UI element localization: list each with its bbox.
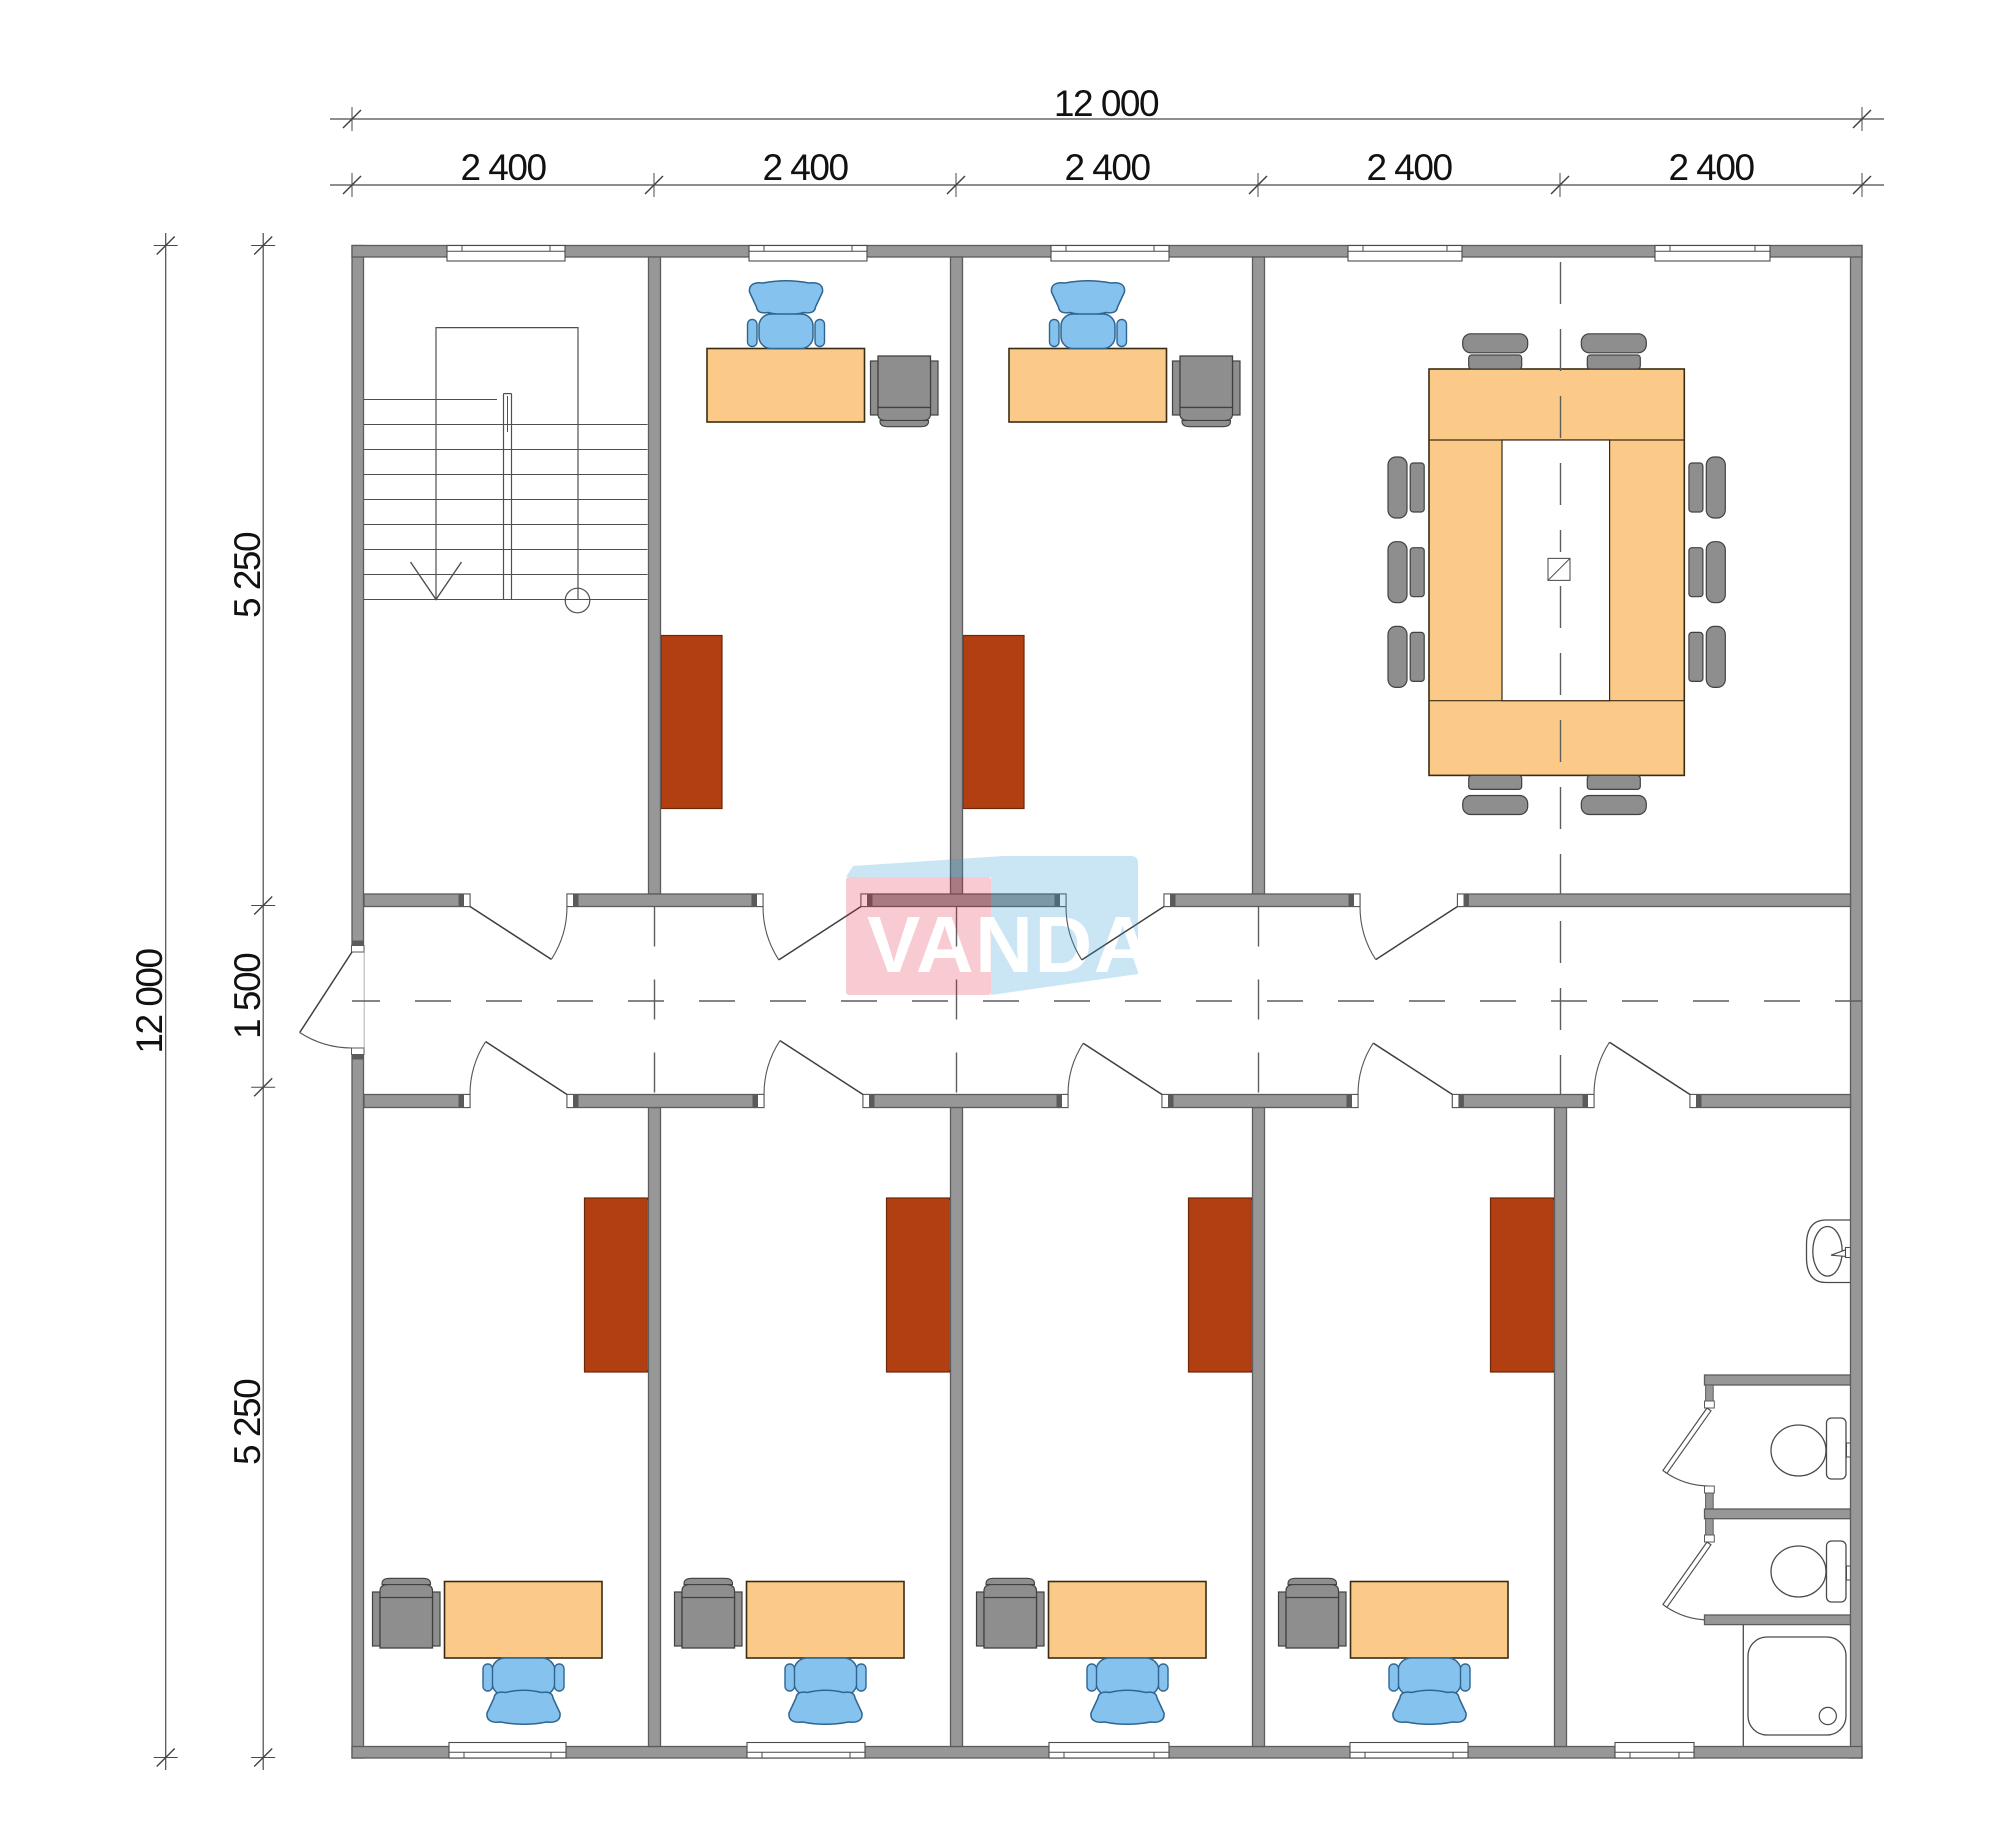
svg-text:5 250: 5 250 [227,1379,268,1465]
svg-text:1 500: 1 500 [227,953,268,1039]
svg-text:12 000: 12 000 [129,948,170,1053]
svg-text:2 400: 2 400 [460,147,546,188]
svg-text:5 250: 5 250 [227,532,268,618]
svg-text:2 400: 2 400 [1366,147,1452,188]
svg-text:12 000: 12 000 [1054,83,1159,124]
svg-text:2 400: 2 400 [762,147,848,188]
svg-text:2 400: 2 400 [1064,147,1150,188]
svg-text:2 400: 2 400 [1668,147,1754,188]
